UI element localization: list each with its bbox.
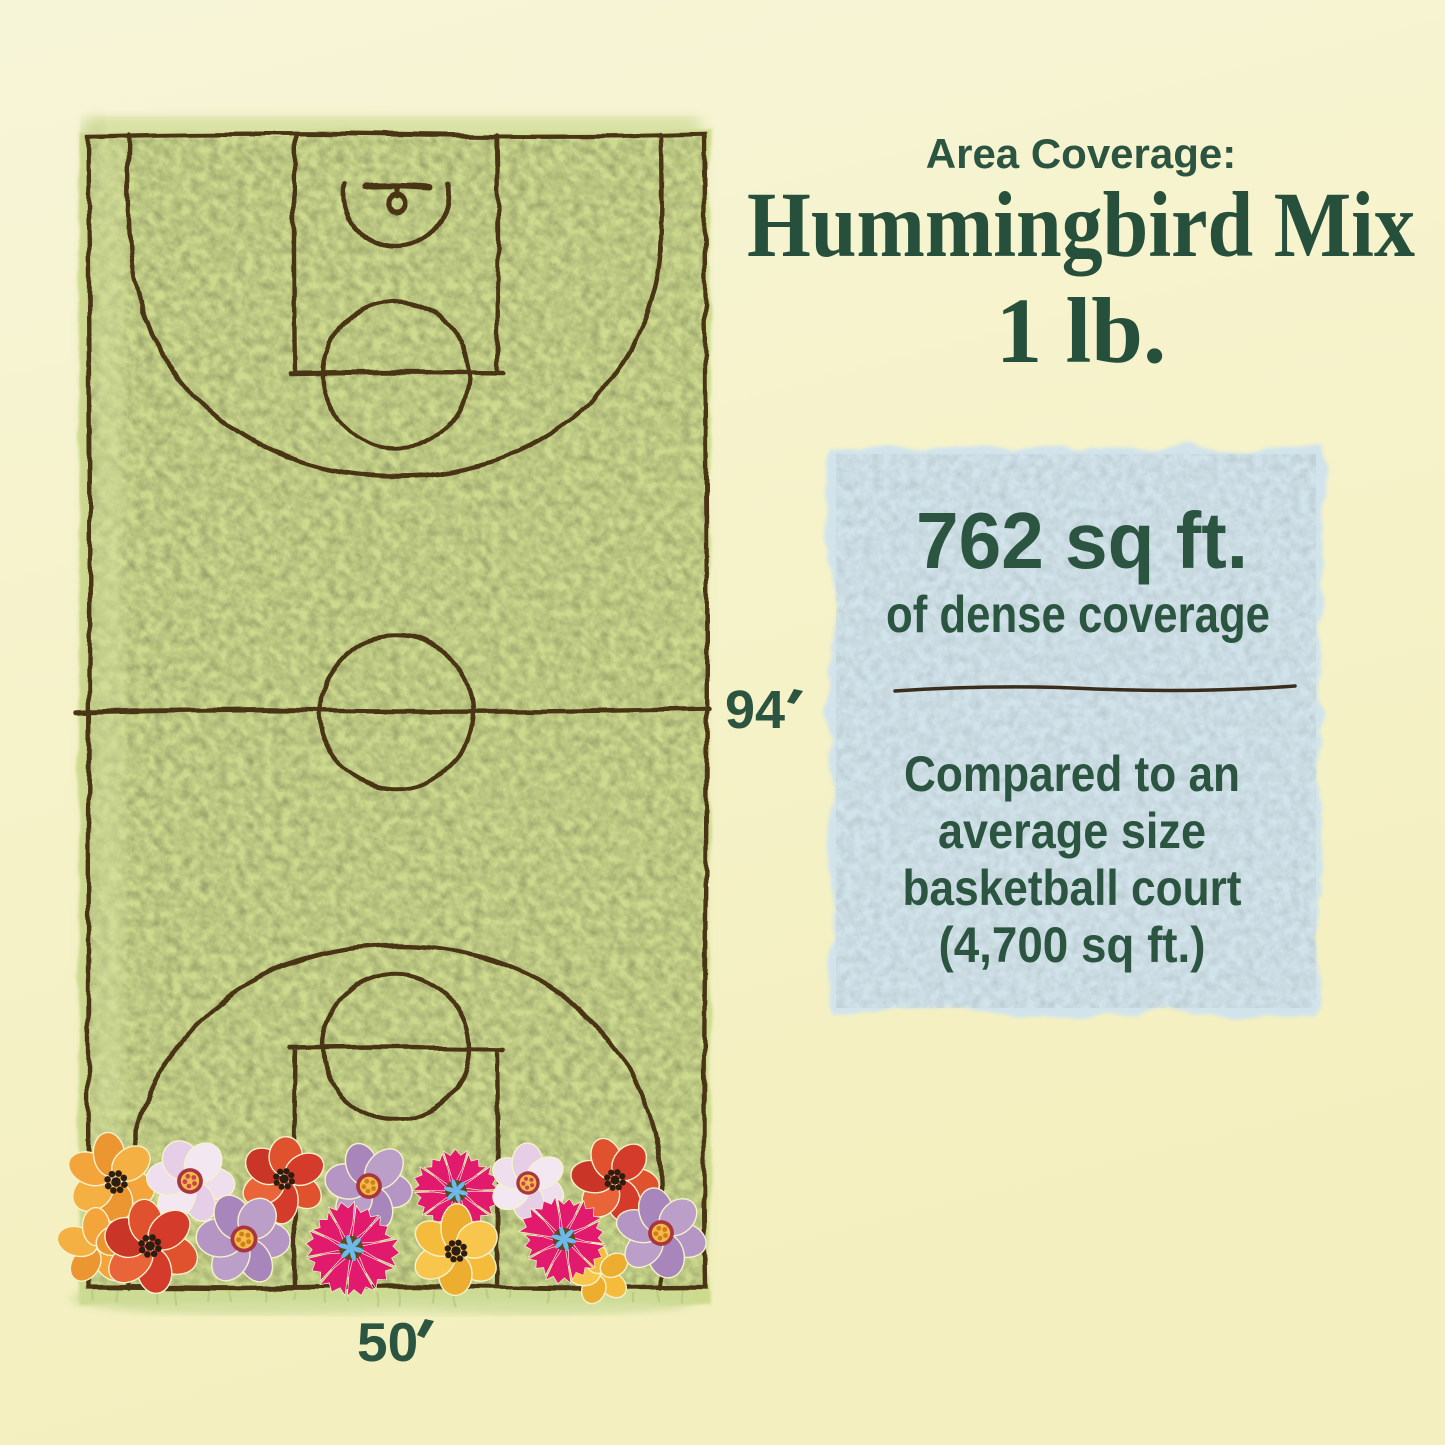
svg-text:50: 50 xyxy=(357,1311,418,1373)
svg-text:762 sq ft.: 762 sq ft. xyxy=(916,496,1248,585)
svg-text:Compared to an: Compared to an xyxy=(904,746,1240,802)
svg-text:average size: average size xyxy=(938,803,1206,859)
svg-text:Hummingbird Mix: Hummingbird Mix xyxy=(747,174,1415,277)
svg-text:Area Coverage:: Area Coverage: xyxy=(926,130,1236,177)
svg-text:94: 94 xyxy=(725,680,785,740)
svg-text:of dense coverage: of dense coverage xyxy=(886,586,1270,644)
svg-text:1 lb.: 1 lb. xyxy=(996,280,1167,383)
svg-text:(4,700 sq ft.): (4,700 sq ft.) xyxy=(939,917,1206,973)
svg-text:basketball court: basketball court xyxy=(903,860,1242,916)
